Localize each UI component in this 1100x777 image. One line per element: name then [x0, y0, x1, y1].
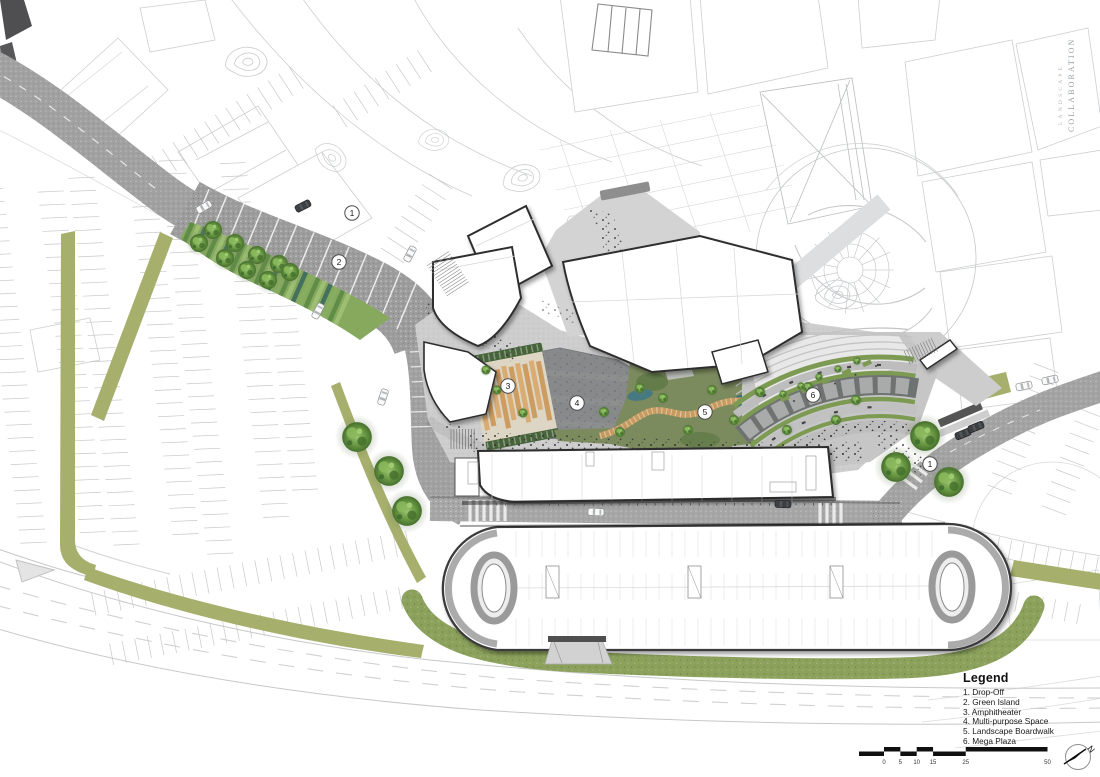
- svg-text:10: 10: [913, 760, 920, 766]
- plan-marker: 1: [345, 206, 359, 220]
- car: [377, 388, 389, 405]
- svg-text:1: 1: [350, 208, 355, 218]
- svg-text:25: 25: [962, 760, 969, 766]
- svg-text:4: 4: [575, 398, 580, 408]
- car: [403, 245, 417, 263]
- studio-name: LANDSCAPE COLLABORATION: [1058, 38, 1076, 132]
- legend-item: 6. Mega Plaza: [963, 737, 1054, 747]
- site-plan-drawing: 1234561 0510152550 N: [0, 0, 1100, 777]
- car: [588, 508, 604, 516]
- legend-list: 1. Drop-Off2. Green Island3. Amphitheate…: [963, 688, 1054, 747]
- svg-text:5: 5: [899, 760, 903, 766]
- svg-text:3: 3: [506, 381, 511, 391]
- svg-text:15: 15: [930, 760, 937, 766]
- plan-marker: 6: [806, 388, 820, 402]
- svg-text:1: 1: [928, 459, 933, 469]
- retail-building: [455, 447, 836, 503]
- plan-marker: 2: [332, 255, 346, 269]
- studio-name-line2: COLLABORATION: [1067, 38, 1076, 132]
- studio-name-line1: LANDSCAPE: [1058, 38, 1064, 132]
- svg-text:5: 5: [703, 407, 708, 417]
- scale-bar: 0510152550: [859, 747, 1051, 766]
- site-plan-sheet: 1234561 0510152550 N Legend 1. Drop-Off2…: [0, 0, 1100, 777]
- parking-structure: [443, 523, 1011, 664]
- garage-entrance-ramp: [545, 640, 612, 664]
- plan-marker: 3: [501, 379, 515, 393]
- plan-marker: 5: [698, 405, 712, 419]
- plan-marker: 4: [570, 396, 584, 410]
- svg-text:50: 50: [1044, 760, 1051, 766]
- svg-text:2: 2: [337, 257, 342, 267]
- legend: Legend 1. Drop-Off2. Green Island3. Amph…: [963, 671, 1054, 747]
- plan-marker: 1: [923, 457, 937, 471]
- legend-title: Legend: [963, 671, 1054, 685]
- north-arrow: N: [1064, 744, 1097, 770]
- svg-text:6: 6: [811, 390, 816, 400]
- svg-text:0: 0: [882, 760, 886, 766]
- car: [775, 500, 791, 508]
